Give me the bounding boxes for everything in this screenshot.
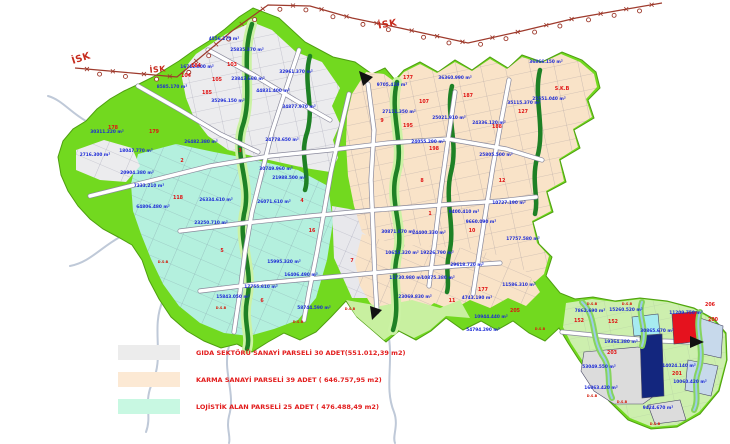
parcel-area-label: 15260.520 m² [609, 307, 643, 313]
block-number: 179 [149, 129, 160, 135]
block-number: 200 [708, 317, 719, 323]
parcel-area-label: 18047.770 m² [119, 148, 153, 154]
isk-manhole-marker [447, 41, 451, 45]
legend: GIDA SEKTÖRÜ SANAYİ PARSELİ 30 ADET(551.… [118, 345, 405, 426]
block-number: 188 [492, 124, 503, 130]
parcel-area-label: 23843.660 m² [231, 76, 265, 82]
dsb-label: D.S.B [216, 306, 227, 310]
isk-manhole-marker [207, 54, 211, 58]
parcel-area-label: 9705.410 m² [377, 82, 408, 88]
isk-manhole-marker [587, 18, 591, 22]
block-number: 118 [173, 195, 184, 201]
dsb-label: D.S.B [293, 320, 304, 324]
isk-manhole-marker [533, 30, 537, 34]
parcel-area-label: 10875.380 m² [421, 275, 455, 281]
parcel-area-label: 15995.320 m² [267, 259, 301, 265]
parcel-area-label: 19364.380 m² [604, 339, 638, 345]
dsb-label: D.S.B [587, 394, 598, 398]
block-number: 127 [518, 109, 528, 115]
block-number: 195 [403, 123, 413, 129]
parcel-area-label: 29618.720 m² [450, 262, 484, 268]
isk-manhole-marker [331, 15, 335, 19]
parcel-area-label: 15843.050 m² [216, 294, 250, 300]
parcel-area-label: 16406.490 m² [284, 272, 318, 278]
block-number: 152 [608, 319, 618, 325]
legend-label-karma: KARMA SANAYİ PARSELİ 39 ADET ( 646.757,9… [196, 376, 382, 384]
parcel-area-label: 25551.040 m² [532, 96, 566, 102]
parcel-area-label: 36360.990 m² [438, 75, 472, 81]
parcel-area-label: 4556.270 m² [209, 36, 240, 42]
block-number: 205 [510, 308, 520, 314]
parcel-area-label: 30749.960 m² [259, 166, 293, 172]
legend-swatch-karma [118, 372, 180, 387]
block-number: 16 [309, 228, 316, 234]
parcel-area-label: 11586.310 m² [502, 282, 536, 288]
isk-manhole-marker [612, 13, 616, 17]
isk-label: İSK [70, 50, 92, 66]
block-number: 103 [227, 62, 237, 68]
block-number: 184 [191, 63, 202, 69]
legend-label-gida: GIDA SEKTÖRÜ SANAYİ PARSELİ 30 ADET(551.… [196, 349, 405, 357]
parcel-area-label: 17757.580 m² [506, 236, 540, 242]
legend-item-karma: KARMA SANAYİ PARSELİ 39 ADET ( 646.757,9… [118, 372, 405, 387]
block-number: 12 [499, 178, 506, 184]
isk-manhole-marker [479, 42, 483, 46]
block-number: 107 [419, 99, 429, 105]
isk-manhole-marker [155, 77, 159, 81]
isk-label: İSK [149, 63, 167, 75]
parcel-area-label: 24778.650 m² [265, 137, 299, 143]
parcel-area-label: 9424.670 m² [643, 405, 674, 411]
block-number: 3 [238, 148, 241, 154]
parcel-area-label: 53049.550 m² [582, 364, 616, 370]
site-plan-screenshot: 4556.270 m²25835.370 m²16712.800 m²8585.… [0, 0, 730, 444]
block-number: 1 [428, 211, 431, 217]
parcel-area-label: 30865.670 m² [640, 328, 674, 334]
block-number: 177 [478, 287, 488, 293]
parcel-area-label: 24055.290 m² [411, 139, 445, 145]
block-number: 178 [108, 125, 119, 131]
parcel-area-label: 10944.440 m² [474, 314, 508, 320]
block-number: 206 [705, 302, 716, 308]
parcel-area-label: 7862.690 m² [575, 308, 606, 314]
parcel-area-label: 10727.190 m² [492, 200, 526, 206]
dsb-label: D.S.B [587, 302, 598, 306]
legend-label-lojistik: LOJİSTİK ALAN PARSELİ 25 ADET ( 476.488,… [196, 403, 379, 411]
parcel-area-label: 32961.370 m² [279, 69, 313, 75]
isk-manhole-marker [638, 9, 642, 13]
parcel-area-label: 25021.910 m² [432, 115, 466, 121]
isk-manhole-marker [278, 7, 282, 11]
parcel-area-label: 26482.380 m² [184, 139, 218, 145]
block-number: 201 [672, 371, 682, 377]
parcel-area-label: 19226.790 m² [420, 250, 454, 256]
parcel-area-label: 30871.870 m² [381, 229, 415, 235]
isk-manhole-marker [558, 24, 562, 28]
parcel-area-label: 25805.500 m² [479, 152, 513, 158]
dsb-label: D.S.B [158, 260, 169, 264]
parcel-area-label: 9400.410 m² [449, 209, 480, 215]
block-number: 104 [181, 73, 192, 79]
parcel-area-label: 11209.750 m² [669, 310, 703, 316]
isk-manhole-marker [422, 35, 426, 39]
parcel-area-label: 23250.710 m² [194, 220, 228, 226]
parcel-area-label: 44831.400 m² [256, 88, 290, 94]
parcel-area-label: 20904.380 m² [120, 170, 154, 176]
isk-manhole-marker [98, 72, 102, 76]
dsb-label: D.S.B [617, 400, 628, 404]
parcel-area-label: 35296.150 m² [211, 98, 245, 104]
parcel-area-label: 25835.370 m² [230, 47, 264, 53]
parcel-area-label: 26071.610 m² [257, 199, 291, 205]
parcel-area-label: 23069.830 m² [398, 294, 432, 300]
block-number: 2 [180, 158, 183, 164]
dsb-label: D.S.B [535, 327, 546, 331]
dsb-label: D.S.B [650, 422, 661, 426]
block-number: 187 [463, 93, 473, 99]
parcel-area-label: 26334.610 m² [199, 197, 233, 203]
block-number: 177 [403, 75, 413, 81]
parcel-area-label: 21988.500 m² [272, 175, 306, 181]
dsb-label: D.S.B [345, 307, 356, 311]
parcel-area-label: 17755.610 m² [244, 284, 278, 290]
block-number: 105 [212, 77, 222, 83]
legend-item-gida: GIDA SEKTÖRÜ SANAYİ PARSELİ 30 ADET(551.… [118, 345, 405, 360]
parcel-area-label: 4743.190 m² [462, 295, 493, 301]
isk-manhole-marker [123, 74, 127, 78]
isk-manhole-marker [304, 8, 308, 12]
parcel-area-label: 10653.320 m² [385, 250, 419, 256]
block-number: 11 [449, 298, 456, 304]
parcel-area-label: 36866.150 m² [529, 59, 563, 65]
parcel-area-label: 58744.590 m² [297, 305, 331, 311]
block-number: 198 [429, 146, 440, 152]
isk-label: İSK [377, 17, 398, 31]
legend-swatch-gida [118, 345, 180, 360]
parcel-area-label: 14024.140 m² [662, 363, 696, 369]
parcel-area-label: 8585.170 m² [157, 84, 188, 90]
block-number: S.K.B [555, 86, 570, 92]
block-number: 5 [220, 248, 223, 254]
parcel-area-label: 34877.970 m² [282, 104, 316, 110]
parcel-area-label: 64806.480 m² [136, 204, 170, 210]
parcel-area-label: 24400.330 m² [412, 230, 446, 236]
parcel-area-label: 10060.420 m² [673, 379, 707, 385]
block-number: 7 [350, 258, 353, 264]
parcel-area-label: 27111.350 m² [382, 109, 416, 115]
parcel-area-label: 16063.420 m² [584, 385, 618, 391]
parcel-area-label: 11730.980 m² [389, 275, 423, 281]
block-number: 152 [574, 318, 584, 324]
legend-swatch-lojistik [118, 399, 180, 414]
isk-manhole-marker [504, 37, 508, 41]
block-number: 10 [469, 228, 476, 234]
block-number: 203 [607, 350, 617, 356]
parcel-area-label: 9660.090 m² [466, 219, 497, 225]
legend-item-lojistik: LOJİSTİK ALAN PARSELİ 25 ADET ( 476.488,… [118, 399, 405, 414]
isk-manhole-marker [361, 22, 365, 26]
parcel-area-label: 7333.210 m² [134, 183, 165, 189]
isk-x-tick [261, 7, 265, 11]
block-number: 185 [202, 90, 212, 96]
isk-manhole-marker [253, 18, 257, 22]
parcel-area-label: 54794.290 m² [466, 327, 500, 333]
parcel-area-label: 2716.300 m² [80, 152, 111, 158]
dsb-label: D.S.B [622, 302, 633, 306]
